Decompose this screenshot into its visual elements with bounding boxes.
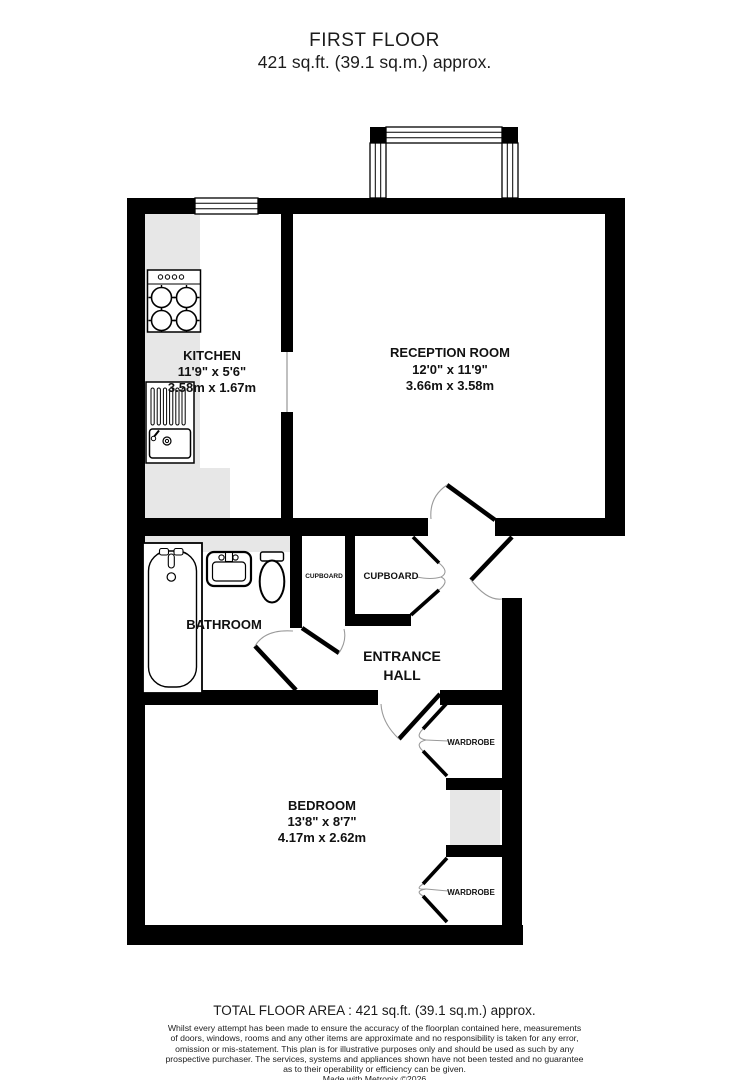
basin (207, 552, 251, 586)
reception-dim-metric: 3.66m x 3.58m (406, 378, 494, 393)
wardrobe-bottom-label: WARDROBE (447, 888, 495, 897)
kitchen-dim-metric: 3.58m x 1.67m (168, 380, 256, 395)
entrance-hall-label-line1: ENTRANCE (363, 648, 441, 664)
bedroom-dim-imperial: 13'8" x 8'7" (287, 814, 356, 829)
reception-dim-imperial: 12'0" x 11'9" (412, 362, 488, 377)
bedroom-door (381, 694, 440, 739)
cupboard-small-door (302, 628, 345, 653)
disclaimer-line: prospective purchaser. The services, sys… (0, 1054, 749, 1064)
disclaimer-line: omission or mis-statement. This plan is … (0, 1044, 749, 1054)
bedroom-label: BEDROOM (288, 798, 356, 813)
disclaimer-line: of doors, windows, rooms and any other i… (0, 1033, 749, 1043)
total-floor-area: TOTAL FLOOR AREA : 421 sq.ft. (39.1 sq.m… (0, 1003, 749, 1019)
bathroom-door (255, 631, 296, 690)
footer-block: TOTAL FLOOR AREA : 421 sq.ft. (39.1 sq.m… (0, 1003, 749, 1080)
storage-recess-shading (450, 790, 500, 845)
kitchen-dim-imperial: 11'9" x 5'6" (178, 364, 246, 379)
bedroom-dim-metric: 4.17m x 2.62m (278, 830, 366, 845)
floorplan-drawing: KITCHEN 11'9" x 5'6" 3.58m x 1.67m RECEP… (0, 0, 749, 1080)
cupboard-small-label: CUPBOARD (305, 573, 343, 580)
reception-door (431, 485, 495, 520)
kitchen-window (195, 198, 258, 214)
bathroom-label: BATHROOM (186, 617, 262, 632)
wardrobe-bottom-bifold-doors (419, 858, 448, 922)
metropix-credit: Made with Metropix ©2026 (0, 1074, 749, 1080)
toilet (260, 552, 285, 603)
cooker (148, 270, 201, 332)
entrance-door (471, 537, 512, 599)
entrance-hall-label-line2: HALL (383, 667, 421, 683)
wardrobe-top-label: WARDROBE (447, 738, 495, 747)
floorplan-page: FIRST FLOOR 421 sq.ft. (39.1 sq.m.) appr… (0, 0, 749, 1080)
kitchen-label: KITCHEN (183, 348, 241, 363)
bay-window (370, 127, 518, 198)
reception-label: RECEPTION ROOM (390, 345, 510, 360)
disclaimer-line: Whilst every attempt has been made to en… (0, 1023, 749, 1033)
cupboard-large-label: CUPBOARD (364, 571, 419, 582)
kitchen-counter-corner-shading (145, 468, 230, 518)
disclaimer-line: as to their operability or efficiency ca… (0, 1064, 749, 1074)
